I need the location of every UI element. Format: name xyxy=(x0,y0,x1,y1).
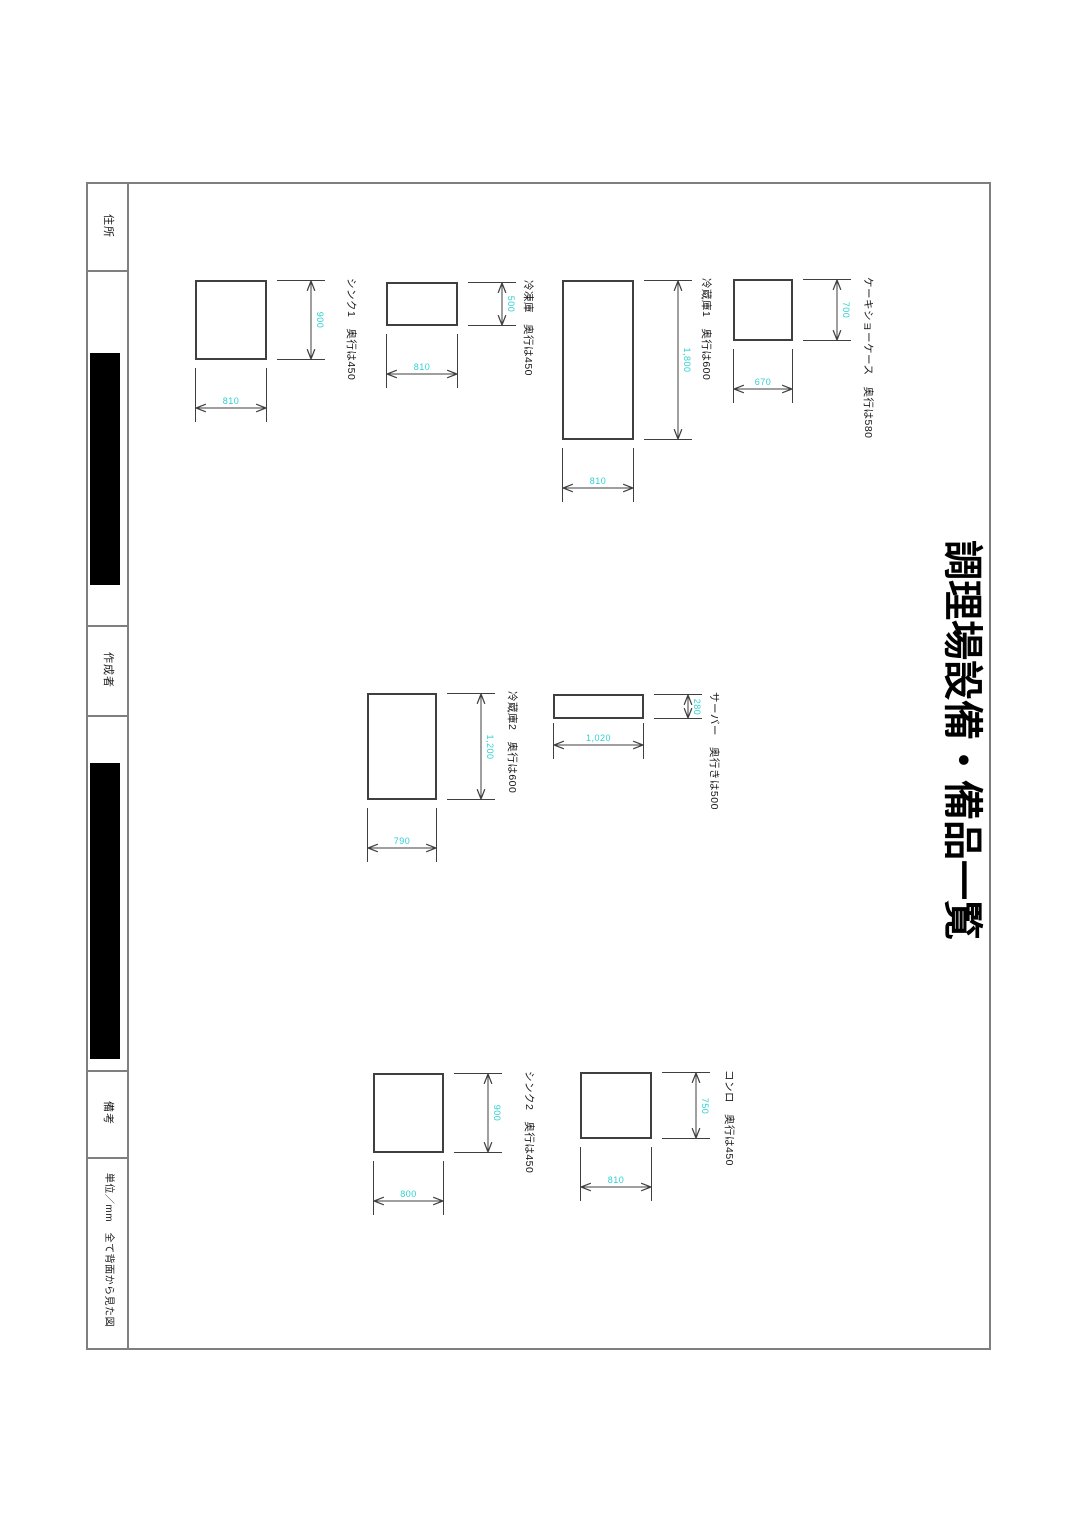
width-dimension-label: 800 xyxy=(400,1189,417,1199)
height-dimension-label: 500 xyxy=(506,296,515,313)
height-dimension-label: 1,800 xyxy=(682,347,691,372)
height-dimension-label: 700 xyxy=(841,302,850,319)
equipment-label: シンク2 奥行は450 xyxy=(524,1071,535,1173)
equipment-rect xyxy=(553,694,644,719)
width-dimension-label: 810 xyxy=(608,1175,625,1185)
height-dimension-label: 750 xyxy=(700,1097,709,1114)
equipment-rect xyxy=(195,280,267,360)
width-dimension-label: 1,020 xyxy=(586,733,611,743)
dimension-lines-layer xyxy=(0,0,1086,1536)
width-dimension-label: 790 xyxy=(394,836,411,846)
equipment-label: ケーキショーケース 奥行は580 xyxy=(863,277,874,439)
equipment-label: 冷蔵庫2 奥行は600 xyxy=(507,691,518,793)
equipment-rect xyxy=(562,280,634,440)
height-dimension-label: 1,200 xyxy=(485,734,494,759)
equipment-rect xyxy=(373,1073,444,1153)
equipment-label: 冷蔵庫1 奥行は600 xyxy=(701,278,712,380)
equipment-label: 冷凍庫 奥行は450 xyxy=(523,280,534,376)
width-dimension-label: 810 xyxy=(590,476,607,486)
equipment-rect xyxy=(733,279,793,341)
width-dimension-label: 810 xyxy=(223,396,240,406)
width-dimension-label: 810 xyxy=(414,362,431,372)
equipment-rect xyxy=(386,282,458,326)
height-dimension-label: 280 xyxy=(692,698,701,715)
height-dimension-label: 900 xyxy=(315,312,324,329)
height-dimension-label: 900 xyxy=(492,1105,501,1122)
equipment-label: サーバー 奥行きは500 xyxy=(709,692,720,810)
equipment-rect xyxy=(367,693,437,800)
equipment-label: シンク1 奥行は450 xyxy=(346,278,357,380)
width-dimension-label: 670 xyxy=(755,377,772,387)
equipment-label: コンロ 奥行は450 xyxy=(724,1070,735,1166)
equipment-rect xyxy=(580,1072,652,1139)
